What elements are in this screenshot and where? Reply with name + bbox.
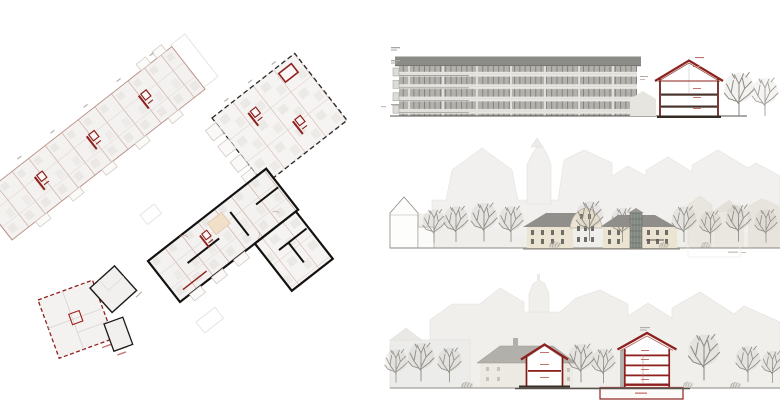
street-section-panel xyxy=(385,274,780,399)
side-balconies xyxy=(393,68,399,113)
basement-annotation xyxy=(635,393,647,394)
tree xyxy=(724,73,753,116)
datum-annotation xyxy=(728,252,746,254)
stray-annotation xyxy=(381,106,386,107)
floor-plan-upper-block xyxy=(198,49,347,193)
floor-plan-ground-L xyxy=(140,169,335,350)
floor-slab xyxy=(528,370,561,372)
annotations xyxy=(640,76,648,80)
ground-under-building xyxy=(523,248,680,250)
building-elevation-panel xyxy=(390,47,778,118)
floor-plan-small-rect xyxy=(104,317,135,356)
flat-roof xyxy=(395,57,641,67)
annotation xyxy=(136,291,143,297)
annotation-red xyxy=(117,351,126,355)
floor-slab xyxy=(661,94,717,96)
house-section xyxy=(630,57,723,118)
floor-slab xyxy=(661,106,717,108)
church-tower xyxy=(529,280,549,312)
floor-plan-long-bar xyxy=(0,29,224,254)
drawing-sheet xyxy=(0,0,780,405)
tree xyxy=(752,78,778,116)
sheet-canvas xyxy=(0,0,780,405)
floor-plans-panel xyxy=(0,29,386,363)
base-slab xyxy=(657,116,721,119)
tower-finial xyxy=(537,274,540,281)
annotation-red xyxy=(102,344,112,349)
street-elevation-panel xyxy=(390,138,780,257)
facade-piers xyxy=(399,66,637,116)
church-spire xyxy=(531,138,543,147)
church-tower xyxy=(527,147,551,204)
